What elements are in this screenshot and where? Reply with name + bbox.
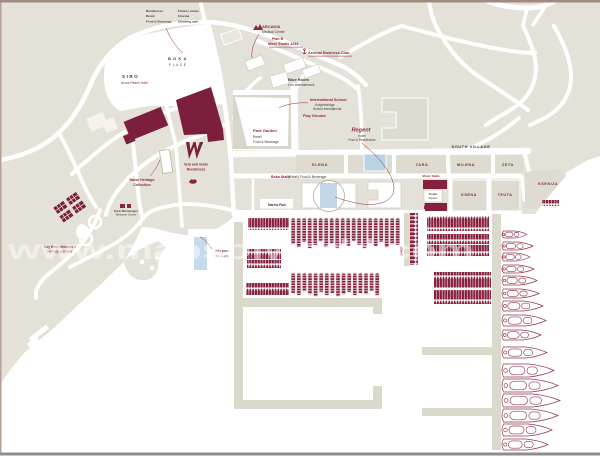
svg-text:International School: International School <box>310 98 347 102</box>
svg-text:PLACE: PLACE <box>169 63 187 67</box>
svg-text:Marina Park: Marina Park <box>268 203 286 207</box>
svg-text:Fitness centre: Fitness centre <box>178 9 199 13</box>
svg-text:Park Garden: Park Garden <box>253 128 277 133</box>
svg-text:Residences: Residences <box>187 168 206 172</box>
svg-text:Collection: Collection <box>133 183 150 187</box>
svg-text:Pool & Residences: Pool & Residences <box>349 138 376 142</box>
svg-text:Cinema: Cinema <box>178 14 189 18</box>
svg-text:Food & Beverage: Food & Beverage <box>253 140 279 144</box>
svg-text:Play Ground: Play Ground <box>303 114 326 118</box>
svg-text:MILENA: MILENA <box>457 163 475 167</box>
svg-text:Motor Stalls: Motor Stalls <box>422 174 439 178</box>
svg-text:TARA: TARA <box>416 163 429 167</box>
svg-text:KSENIJA: KSENIJA <box>538 182 558 186</box>
svg-text:ELENA: ELENA <box>312 163 328 167</box>
svg-text:Welcome Center: Welcome Center <box>116 213 137 217</box>
svg-text:School International: School International <box>313 107 341 111</box>
svg-text:Retail: Retail <box>253 135 262 139</box>
svg-text:Live entertainment: Live entertainment <box>288 83 314 87</box>
svg-text:Square: Square <box>428 196 437 200</box>
svg-text:ARCADIA: ARCADIA <box>262 24 281 29</box>
svg-text:Acros Reach hotel: Acros Reach hotel <box>121 81 148 85</box>
svg-text:TEUTA: TEUTA <box>498 193 513 197</box>
svg-text:KSENA: KSENA <box>461 193 477 197</box>
svg-text:(Retail) Food & Beverage: (Retail) Food & Beverage <box>288 175 326 179</box>
svg-text:Retail: Retail <box>146 14 155 18</box>
svg-text:Medical Center: Medical Center <box>262 30 286 34</box>
svg-text:SOUTH VILLAGE: SOUTH VILLAGE <box>452 144 491 149</box>
svg-text:Regent: Regent <box>352 128 372 134</box>
svg-text:BOKA: BOKA <box>168 56 189 61</box>
svg-text:Arsenal Business Club: Arsenal Business Club <box>308 51 350 55</box>
svg-text:Naval Heritage: Naval Heritage <box>130 178 155 182</box>
svg-text:Climbing wall: Climbing wall <box>178 19 198 23</box>
svg-text:SIRO: SIRO <box>122 74 139 79</box>
svg-text:Blue Room: Blue Room <box>288 77 310 82</box>
svg-text:Move Studio 4244: Move Studio 4244 <box>268 42 298 46</box>
svg-text:www.mapsofworld.com: www.mapsofworld.com <box>7 234 474 265</box>
svg-text:Residences: Residences <box>146 9 163 13</box>
svg-text:Food & Beverage: Food & Beverage <box>146 19 172 23</box>
svg-text:Vera and Verde: Vera and Verde <box>184 163 208 167</box>
svg-text:Plan B: Plan B <box>272 37 284 41</box>
svg-text:ZETA: ZETA <box>502 163 514 167</box>
